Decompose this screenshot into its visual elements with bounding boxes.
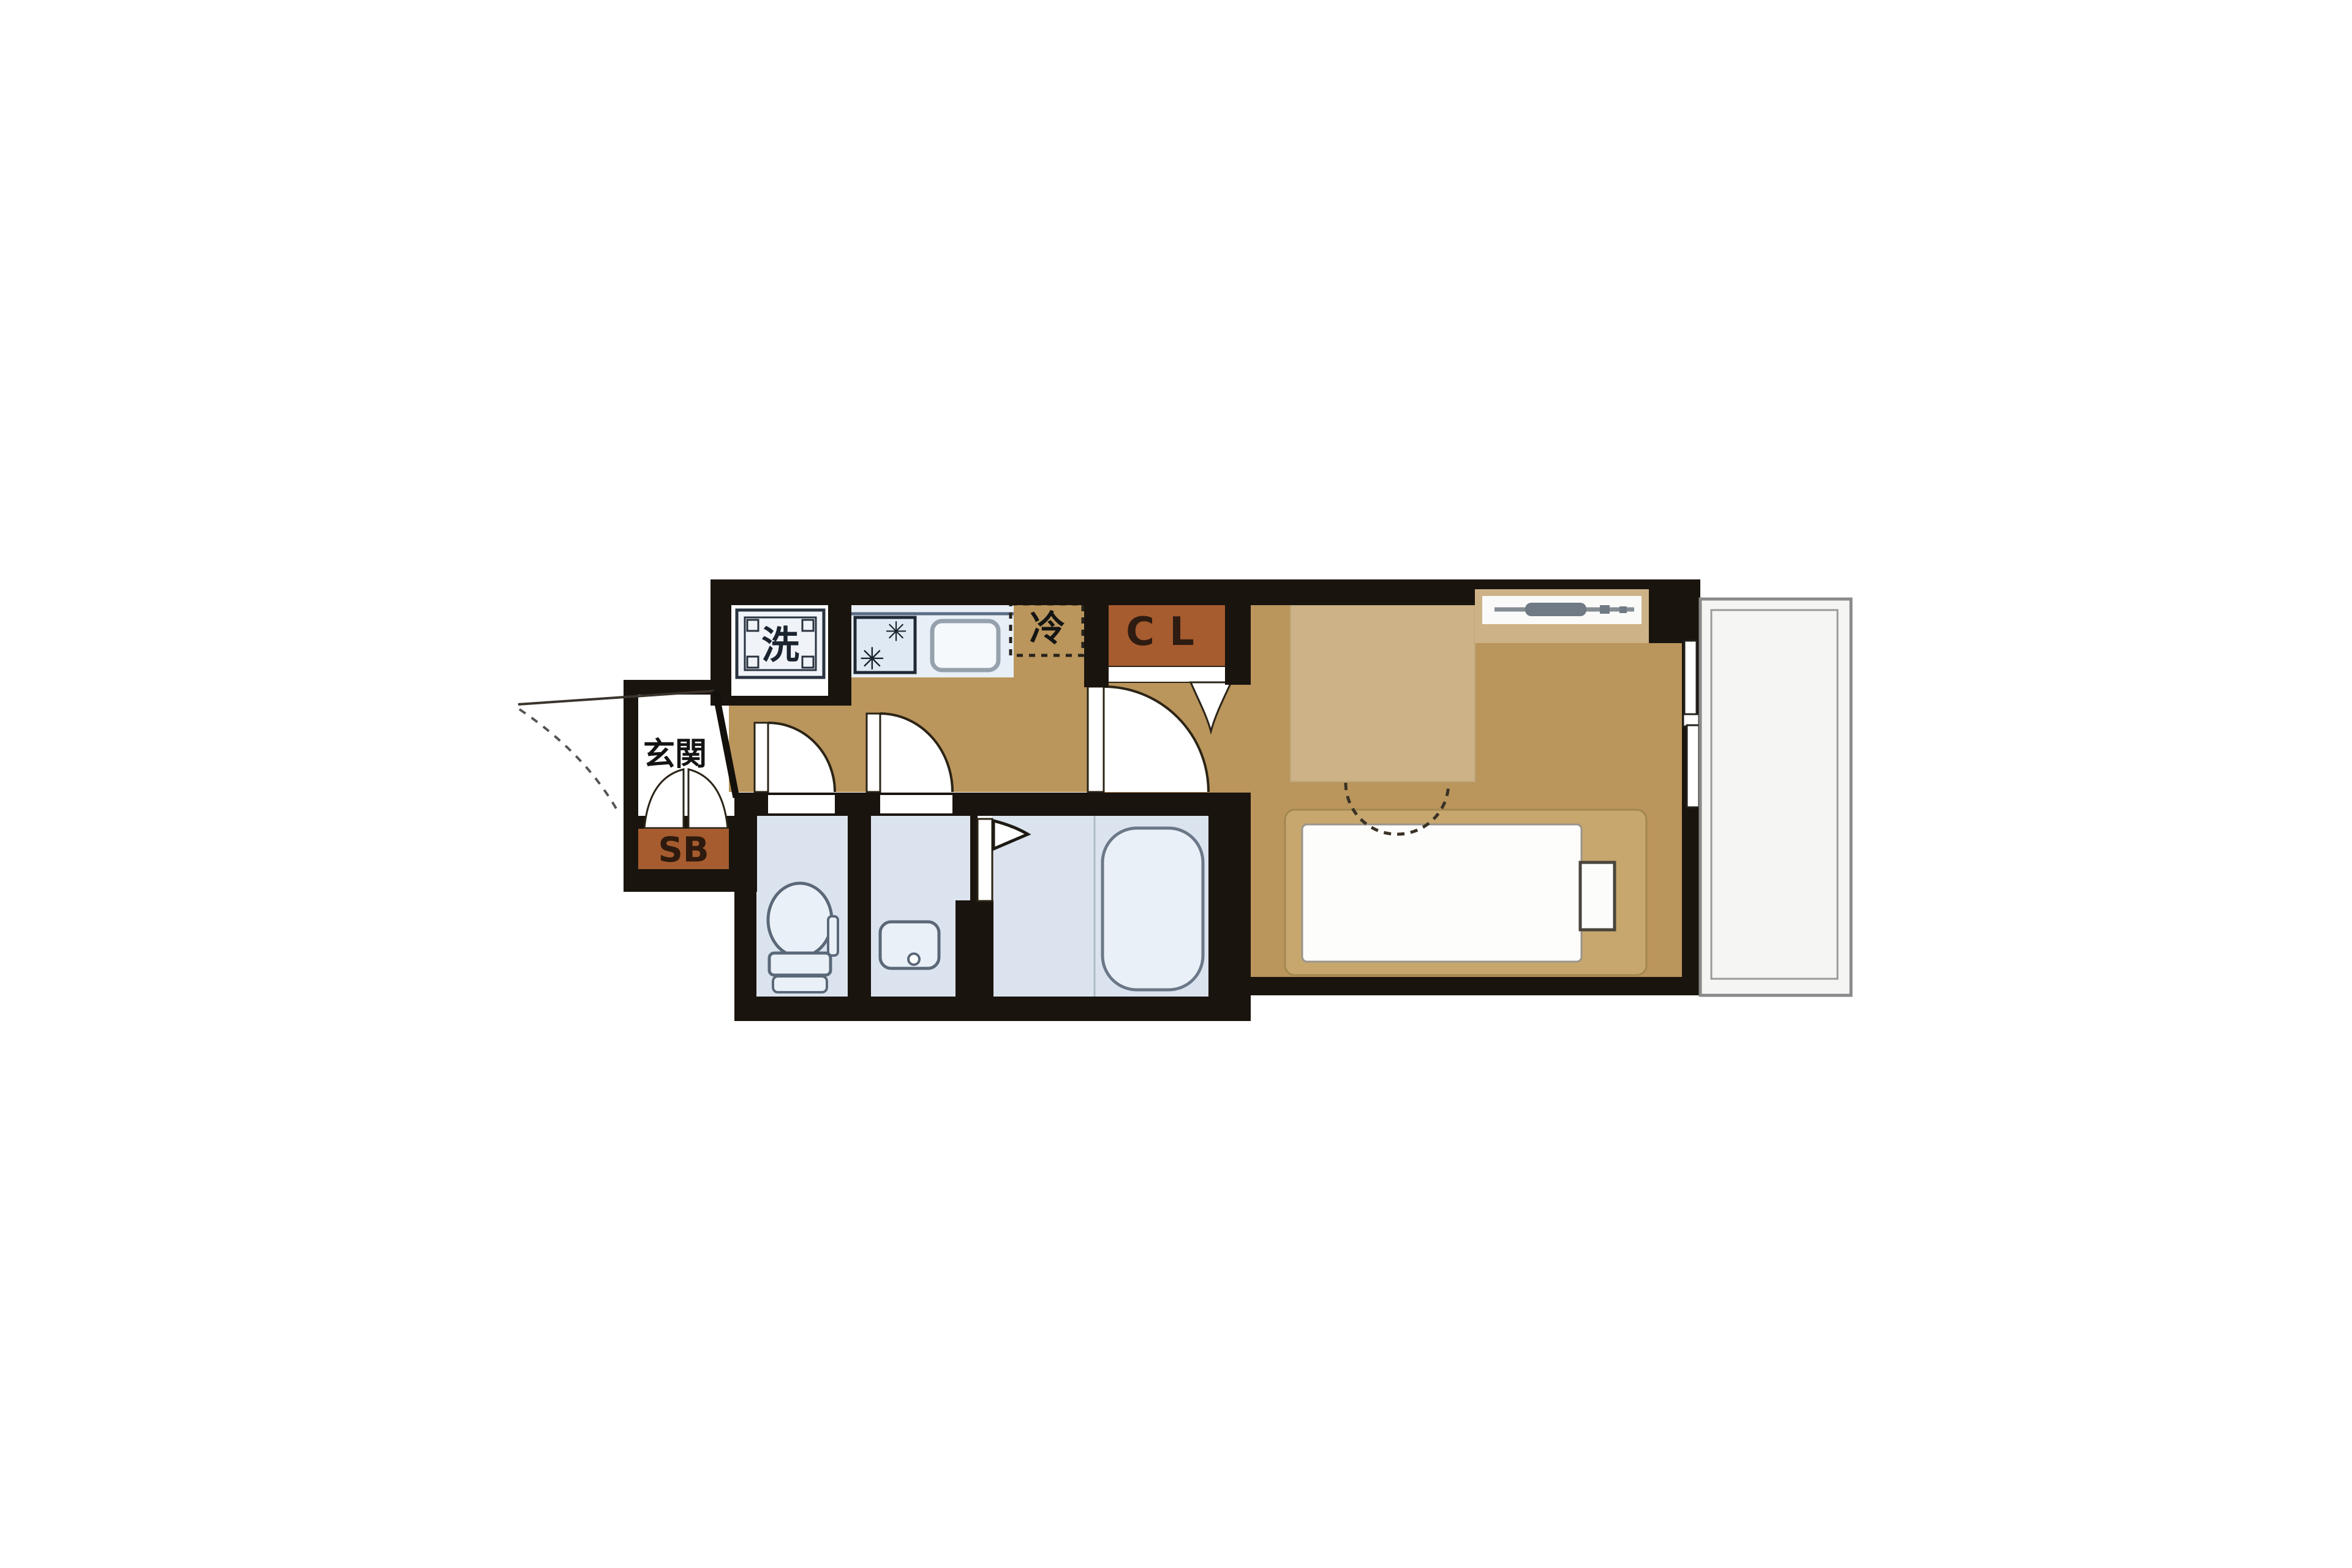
shoe-box: SB xyxy=(638,829,729,870)
wall-toilet-washbasin xyxy=(848,793,871,1021)
toilet-tank xyxy=(769,953,831,975)
toilet-fixture xyxy=(768,883,838,992)
washer-corner xyxy=(802,620,813,631)
north-window xyxy=(1475,589,1649,643)
refrigerator-label: 冷 xyxy=(1030,608,1065,649)
wall-washbasin-bath-lower xyxy=(956,900,993,1021)
washbasin-fixture xyxy=(880,922,939,968)
wall-closet-room xyxy=(1225,579,1251,685)
balcony-fill xyxy=(1700,599,1851,995)
north-window-handle xyxy=(1525,603,1586,616)
shoe-box-label: SB xyxy=(658,831,709,870)
entrance-door-swing-arc xyxy=(519,709,616,809)
washbasin-door-leaf xyxy=(867,714,880,792)
wall-washer-kitchen xyxy=(828,579,851,706)
washing-machine-area: 洗 xyxy=(737,610,824,677)
room-vestibule-floor-2 xyxy=(1225,685,1251,793)
closet-door-strip xyxy=(1106,666,1227,682)
wall-toilet-left xyxy=(734,793,756,1021)
main-room-door-leaf xyxy=(1088,687,1104,792)
washer-corner xyxy=(747,620,758,631)
wall-washer-niche-bottom xyxy=(710,696,851,706)
toilet-side-piece xyxy=(828,916,838,956)
bed-mattress xyxy=(1302,824,1581,962)
wall-washbasin-bath-thin xyxy=(970,815,978,902)
floor-plan: ✳ ✳ 洗 冷 CL xyxy=(0,0,2352,1568)
window-pane-lower xyxy=(1687,725,1699,807)
washbasin-door-opening xyxy=(880,795,952,813)
washing-machine-label: 洗 xyxy=(761,623,799,668)
stove-burner-icon: ✳ xyxy=(885,617,908,648)
washer-corner xyxy=(802,657,813,668)
closet-label: CL xyxy=(1126,609,1209,655)
bathtub-fixture xyxy=(1102,828,1203,990)
stove-burner-icon: ✳ xyxy=(859,641,885,677)
balcony xyxy=(1700,599,1851,995)
entrance-label: 玄関 xyxy=(643,736,707,773)
wall-bath-right xyxy=(1208,793,1251,1021)
bathtub xyxy=(1102,828,1203,990)
kitchen-counter: ✳ ✳ xyxy=(850,605,1014,677)
bathroom-door-leaf xyxy=(978,819,992,901)
bed-pillow-tab xyxy=(1580,862,1615,930)
wall-bottom-main-room xyxy=(1237,977,1700,995)
kitchen-sink-symbol xyxy=(932,621,998,670)
floor-plan-page: ✳ ✳ 洗 冷 CL xyxy=(0,0,2352,1568)
toilet-bowl xyxy=(768,883,832,957)
toilet-door-opening xyxy=(768,795,835,813)
washer-corner xyxy=(747,657,758,668)
desk xyxy=(1291,605,1475,782)
north-window-tick xyxy=(1600,605,1610,614)
wall-entrance-left xyxy=(624,680,638,817)
window-pane-upper xyxy=(1684,641,1697,717)
washbasin-drain xyxy=(908,954,919,965)
toilet-base xyxy=(773,976,827,992)
north-window-tick xyxy=(1619,606,1627,613)
toilet-door-leaf xyxy=(755,723,768,792)
wall-fridge-closet xyxy=(1084,579,1109,687)
